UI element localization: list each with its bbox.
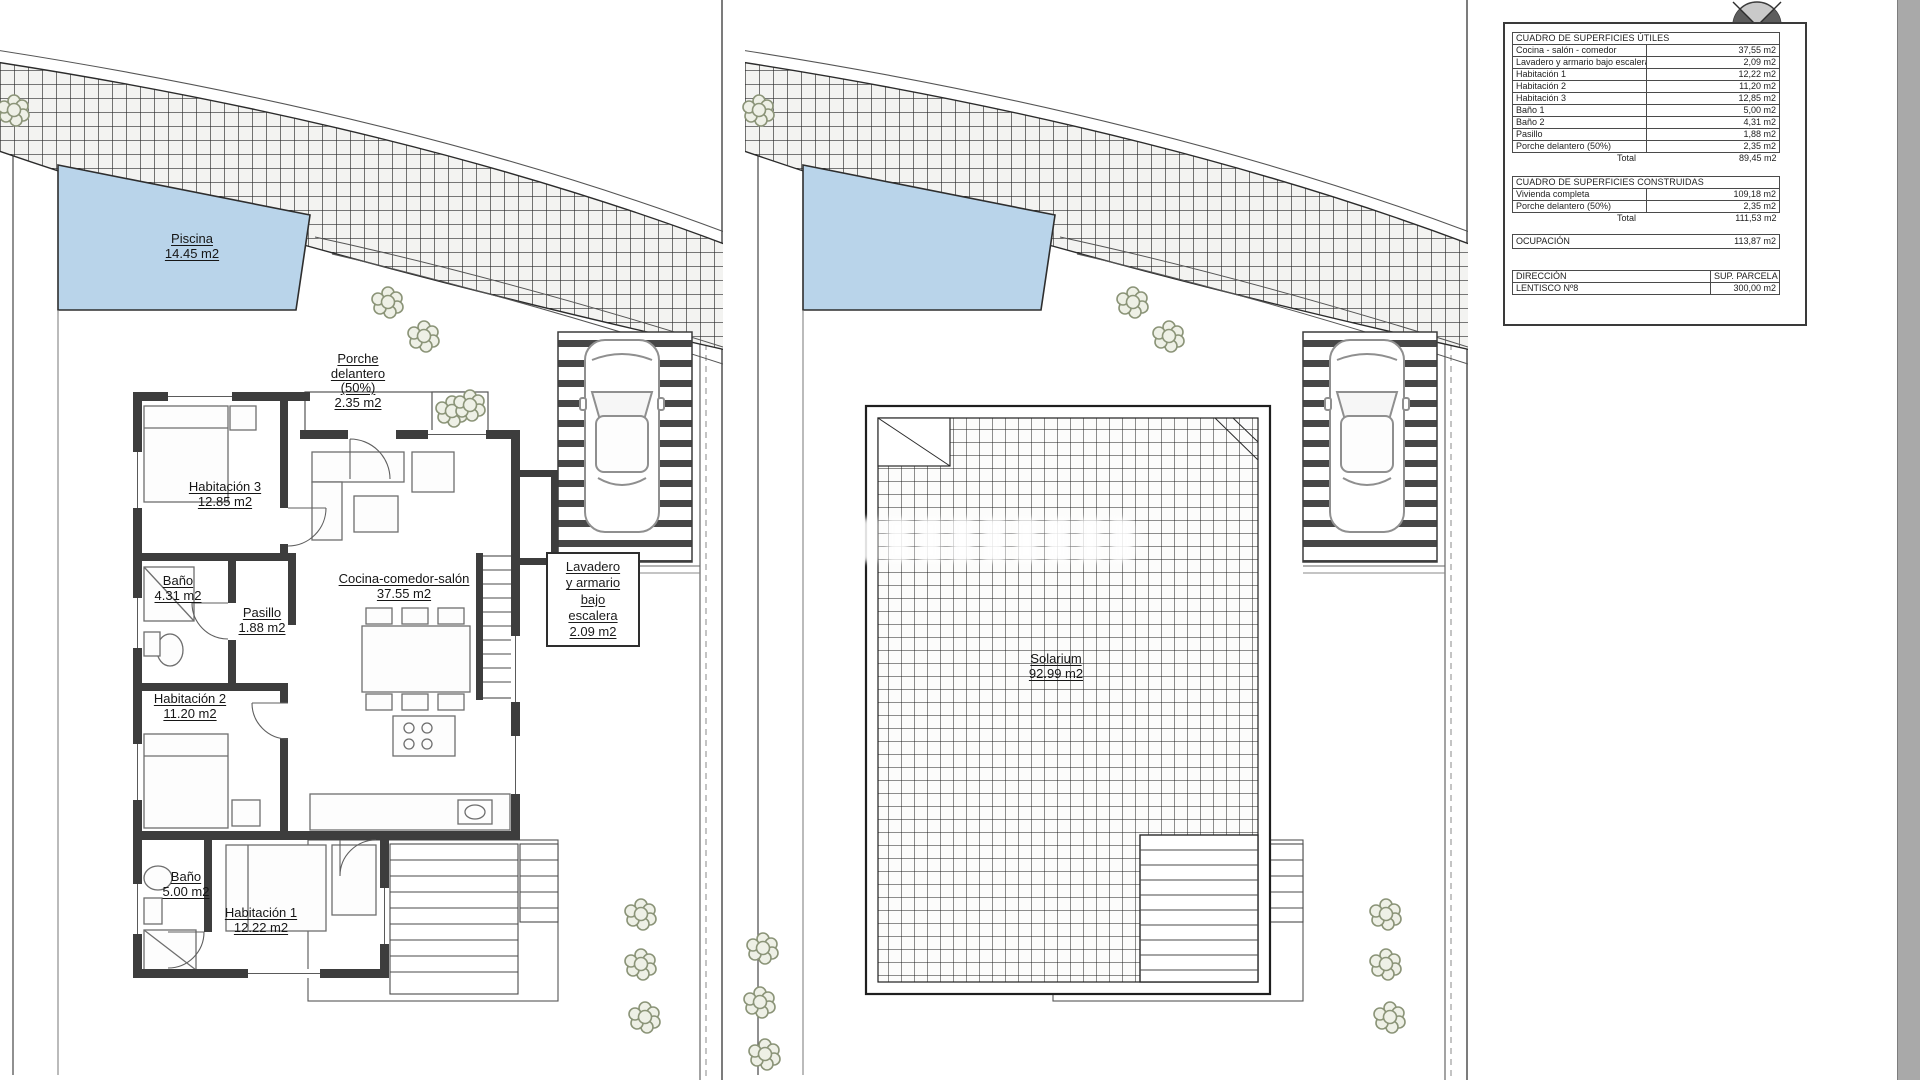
solarium-deck	[866, 406, 1270, 994]
interior-stairs	[482, 556, 512, 698]
pool-label: Piscina14.45 m2	[165, 232, 219, 261]
useful-surfaces-table: CUADRO DE SUPERFICIES ÚTILES Cocina - sa…	[1512, 32, 1780, 164]
built-surfaces-table: CUADRO DE SUPERFICIES CONSTRUIDAS Vivien…	[1512, 176, 1780, 224]
bedroom2-label: Habitación 211.20 m2	[154, 692, 226, 721]
solarium-label: Solarium92.99 m2	[1029, 652, 1083, 681]
address-table: DIRECCIÓNSUP. PARCELA LENTISCO Nº8300,00…	[1512, 270, 1780, 295]
bathroom1-label: Baño4.31 m2	[155, 574, 202, 603]
bathroom2-label: Baño5.00 m2	[163, 870, 210, 899]
occupancy-row: OCUPACIÓN113,87 m2	[1512, 234, 1780, 249]
bedroom1-label: Habitación 112.22 m2	[225, 906, 297, 935]
laundry-label: Lavaderoy armario bajoescalera 2.09 m2	[546, 552, 640, 647]
plan-sheet: Piscina14.45 m2 Porchedelantero (50%)2.3…	[0, 0, 1920, 1080]
kitchen-living-label: Cocina-comedor-salón37.55 m2	[339, 572, 470, 601]
bedroom3-label: Habitación 312.85 m2	[189, 480, 261, 509]
surface-tables-panel: CUADRO DE SUPERFICIES ÚTILES Cocina - sa…	[1503, 22, 1807, 326]
porch-label: Porchedelantero (50%)2.35 m2	[331, 352, 385, 410]
scrollbar-gutter	[1897, 0, 1920, 1080]
hallway-label: Pasillo1.88 m2	[239, 606, 286, 635]
watermark	[824, 518, 1142, 562]
